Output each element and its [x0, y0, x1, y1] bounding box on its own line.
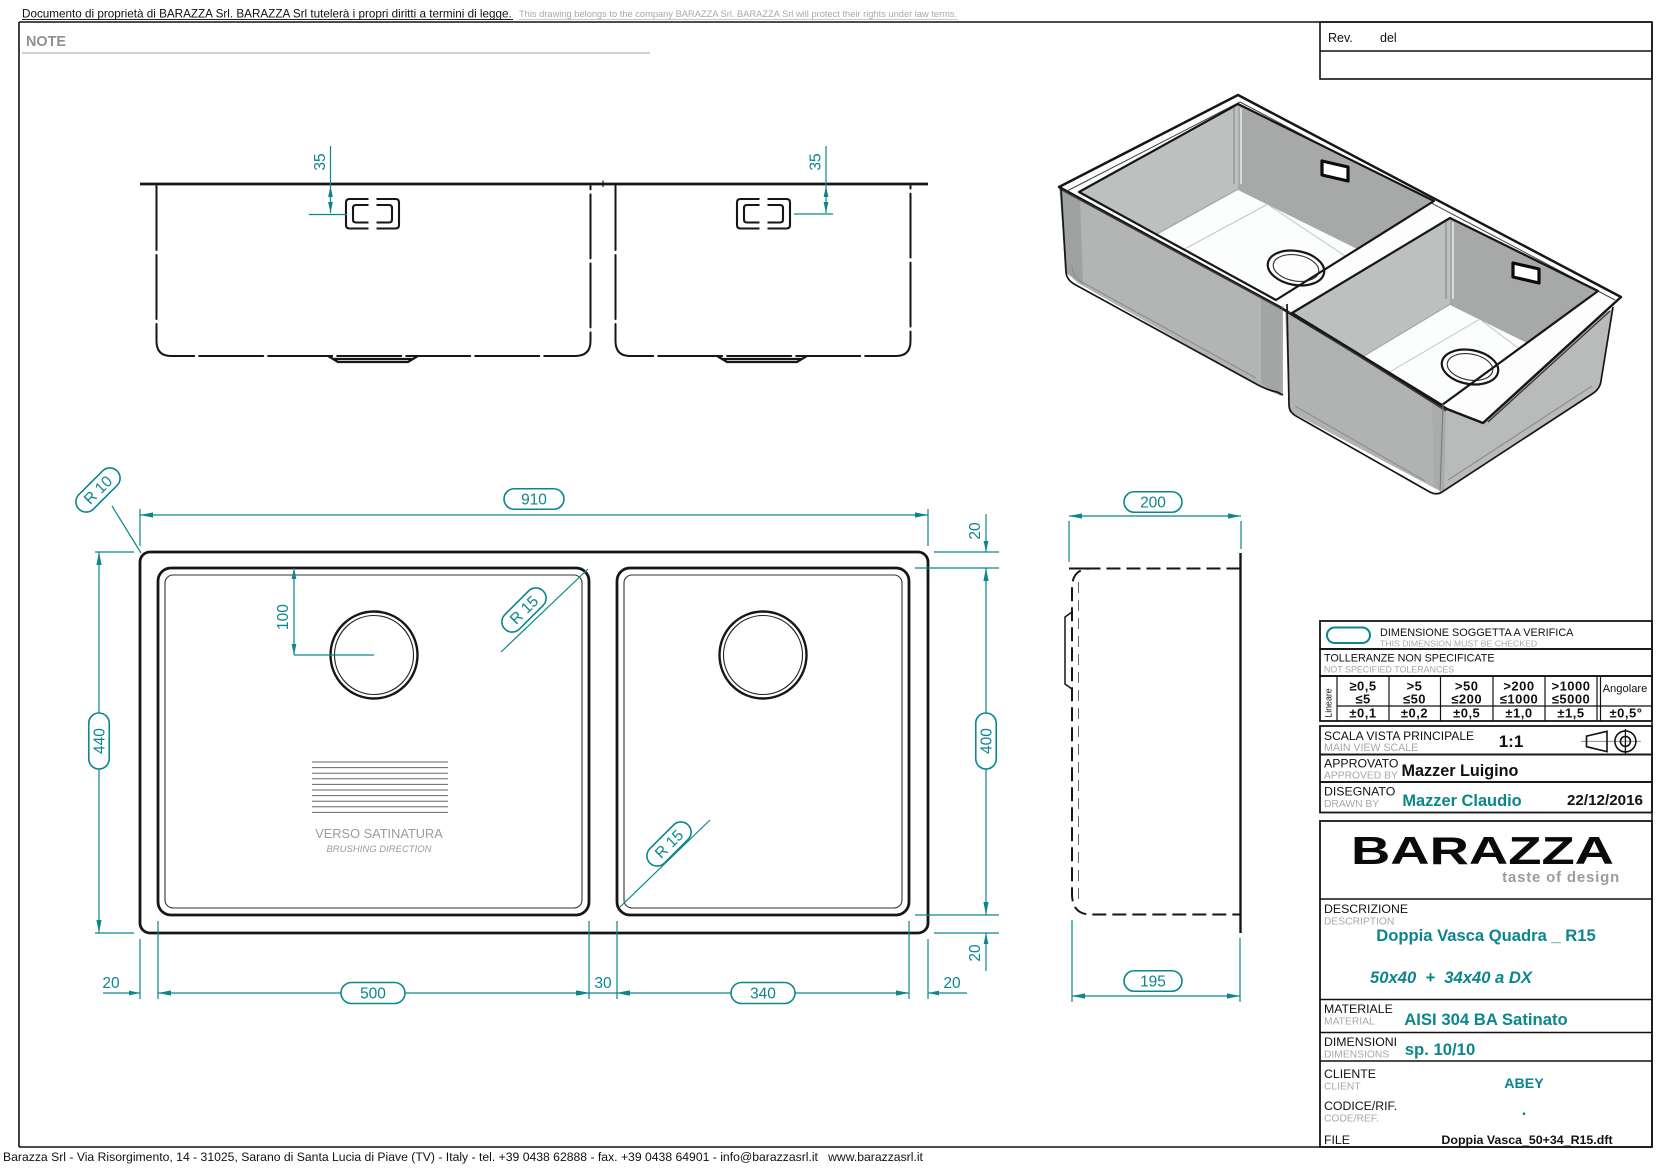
- svg-text:SCALA VISTA PRINCIPALE: SCALA VISTA PRINCIPALE: [1324, 729, 1474, 743]
- svg-text:DESCRIZIONE: DESCRIZIONE: [1324, 902, 1408, 916]
- svg-text:.: .: [1522, 1101, 1527, 1119]
- svg-text:≤5: ≤5: [1355, 692, 1370, 707]
- svg-text:200: 200: [1140, 494, 1166, 511]
- svg-text:Mazzer Luigino: Mazzer Luigino: [1402, 762, 1519, 780]
- svg-text:20: 20: [943, 975, 961, 992]
- svg-text:500: 500: [360, 985, 386, 1002]
- svg-text:sp. 10/10: sp. 10/10: [1405, 1040, 1476, 1059]
- svg-text:CODE/REF.: CODE/REF.: [1324, 1114, 1379, 1125]
- svg-text:DIMENSIONI: DIMENSIONI: [1324, 1035, 1397, 1049]
- svg-text:±1,5: ±1,5: [1557, 706, 1584, 721]
- svg-text:DRAWN BY: DRAWN BY: [1324, 799, 1379, 810]
- svg-text:Doppia Vasca Quadra _ R15: Doppia Vasca Quadra _ R15: [1376, 926, 1596, 945]
- svg-text:±0,2: ±0,2: [1401, 706, 1428, 721]
- svg-text:±1,0: ±1,0: [1505, 706, 1532, 721]
- svg-text:±0,1: ±0,1: [1349, 706, 1376, 721]
- svg-text:DIMENSIONS: DIMENSIONS: [1324, 1050, 1389, 1061]
- svg-text:1:1: 1:1: [1499, 732, 1524, 751]
- svg-text:Mazzer Claudio: Mazzer Claudio: [1402, 792, 1521, 810]
- svg-text:BRUSHING DIRECTION: BRUSHING DIRECTION: [326, 844, 431, 855]
- svg-text:±0,5: ±0,5: [1453, 706, 1480, 721]
- svg-text:35: 35: [312, 153, 329, 170]
- svg-text:≤5000: ≤5000: [1552, 692, 1591, 707]
- svg-text:Documento di proprietà di BARA: Documento di proprietà di BARAZZA Srl. B…: [22, 8, 512, 21]
- svg-text:This drawing belongs to the co: This drawing belongs to the company BARA…: [519, 9, 957, 19]
- svg-text:Angolare: Angolare: [1603, 683, 1648, 695]
- svg-text:Barazza Srl - Via Risorgimento: Barazza Srl - Via Risorgimento, 14 - 310…: [3, 1150, 924, 1164]
- svg-text:Rev.: Rev.: [1328, 31, 1353, 45]
- svg-text:ABEY: ABEY: [1504, 1076, 1544, 1092]
- svg-text:910: 910: [521, 491, 547, 508]
- svg-text:taste of design: taste of design: [1502, 869, 1620, 886]
- svg-text:50x40 + 34x40 a DX: 50x40 + 34x40 a DX: [1370, 968, 1533, 987]
- svg-text:35: 35: [808, 153, 825, 170]
- svg-text:400: 400: [978, 728, 995, 754]
- svg-text:APPROVATO: APPROVATO: [1324, 757, 1398, 771]
- svg-text:±0,5°: ±0,5°: [1610, 706, 1643, 721]
- svg-text:Doppia Vasca_50+34_R15.dft: Doppia Vasca_50+34_R15.dft: [1441, 1133, 1612, 1147]
- svg-text:CLIENTE: CLIENTE: [1324, 1067, 1376, 1081]
- svg-text:DISEGNATO: DISEGNATO: [1324, 785, 1395, 799]
- svg-text:340: 340: [750, 985, 776, 1002]
- svg-text:THIS DIMENSION MUST BE CHECKED: THIS DIMENSION MUST BE CHECKED: [1380, 639, 1537, 649]
- svg-text:VERSO SATINATURA: VERSO SATINATURA: [315, 826, 443, 841]
- svg-text:440: 440: [91, 728, 108, 754]
- svg-text:APPROVED BY: APPROVED BY: [1324, 771, 1398, 782]
- svg-text:20: 20: [967, 522, 984, 540]
- svg-text:NOT SPECIFIED TOLERANCES: NOT SPECIFIED TOLERANCES: [1324, 665, 1454, 675]
- svg-text:del: del: [1380, 31, 1397, 45]
- svg-text:DIMENSIONE SOGGETTA A VERIFICA: DIMENSIONE SOGGETTA A VERIFICA: [1380, 627, 1574, 639]
- svg-text:22/12/2016: 22/12/2016: [1567, 792, 1643, 809]
- svg-text:≤1000: ≤1000: [1500, 692, 1539, 707]
- svg-text:30: 30: [594, 975, 612, 992]
- svg-text:≤50: ≤50: [1403, 692, 1426, 707]
- svg-text:AISI 304 BA Satinato: AISI 304 BA Satinato: [1404, 1010, 1568, 1029]
- svg-text:20: 20: [102, 975, 120, 992]
- svg-text:20: 20: [967, 944, 984, 962]
- svg-text:NOTE: NOTE: [26, 34, 66, 50]
- svg-text:Lineare: Lineare: [1324, 688, 1334, 717]
- svg-text:MATERIAL: MATERIAL: [1324, 1017, 1375, 1028]
- svg-text:100: 100: [275, 604, 292, 630]
- svg-text:TOLLERANZE NON SPECIFICATE: TOLLERANZE NON SPECIFICATE: [1324, 653, 1495, 665]
- svg-text:MAIN VIEW SCALE: MAIN VIEW SCALE: [1324, 742, 1418, 754]
- svg-text:CLIENT: CLIENT: [1324, 1082, 1361, 1093]
- svg-text:≤200: ≤200: [1451, 692, 1482, 707]
- svg-text:MATERIALE: MATERIALE: [1324, 1002, 1393, 1016]
- svg-text:BARAZZA: BARAZZA: [1351, 830, 1614, 873]
- svg-text:195: 195: [1140, 973, 1166, 990]
- svg-text:CODICE/RIF.: CODICE/RIF.: [1324, 1099, 1397, 1113]
- svg-text:FILE: FILE: [1324, 1133, 1350, 1147]
